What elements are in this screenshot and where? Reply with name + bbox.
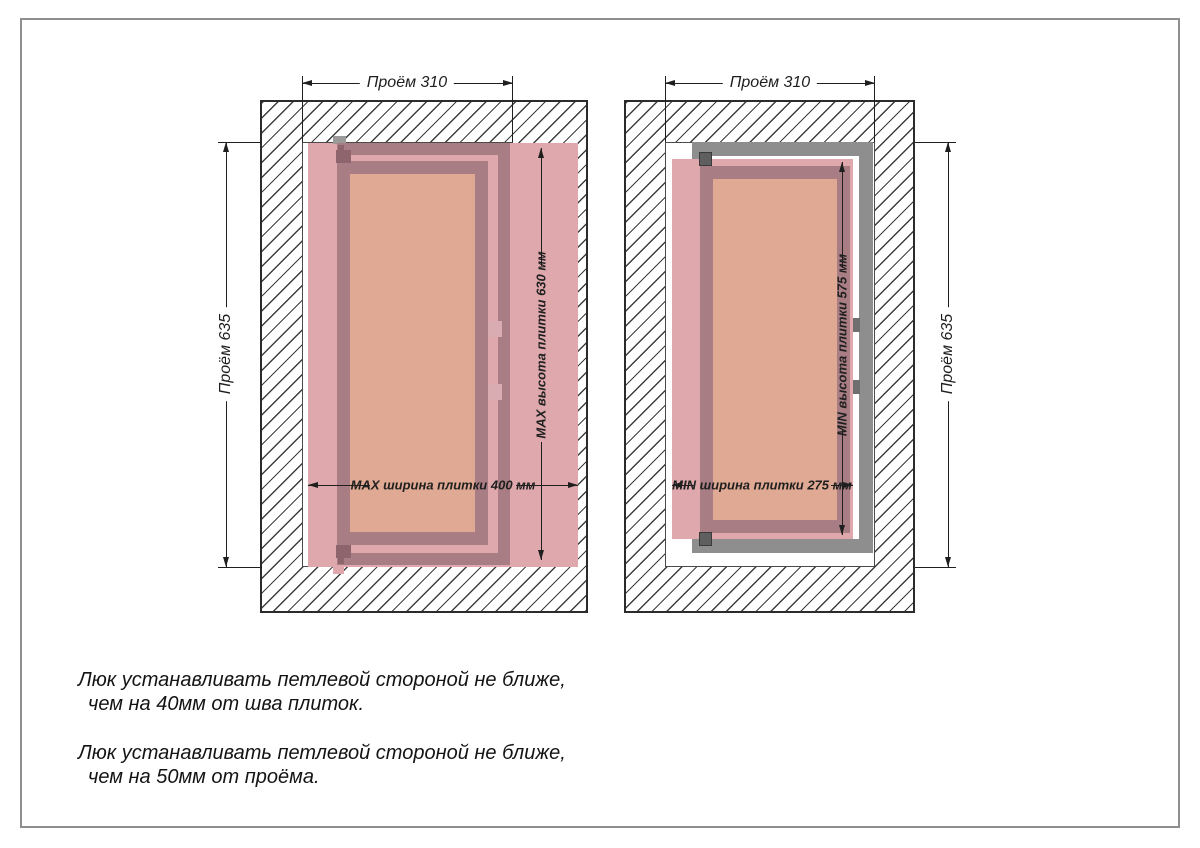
right-tile-width-label: MIN ширина плитки 275 мм	[672, 478, 852, 493]
right-dim-arrow	[865, 80, 875, 86]
left-hinge-top-pin	[338, 145, 344, 151]
note-line: Люк устанавливать петлевой стороной не б…	[78, 742, 566, 766]
left-opening-width-label: Проём 310	[360, 74, 454, 92]
left-dim-arrow	[223, 557, 229, 567]
right-hinge-bottom	[699, 532, 712, 546]
right-dim-ext-line	[874, 76, 875, 142]
left-latch-slot-lower	[488, 384, 502, 400]
left-tile-height-label: MAX высота плитки 630 мм	[534, 251, 549, 438]
right-dim-arrow	[945, 142, 951, 152]
right-dim-line-tile-height	[842, 429, 843, 535]
note-line: чем на 40мм от шва плиток.	[78, 693, 566, 717]
left-hinge-bottom	[336, 545, 351, 558]
right-opening-width-label: Проём 310	[723, 74, 817, 92]
left-opening-height-label: Проём 635	[217, 307, 235, 401]
left-dim-line-tile-height	[541, 442, 542, 560]
right-tile-height-label: MIN высота плитки 575 мм	[835, 254, 850, 436]
right-hinge-top	[699, 152, 712, 166]
note-line: Люк устанавливать петлевой стороной не б…	[78, 669, 566, 693]
left-latch-slot-upper	[488, 321, 502, 337]
right-dim-ext-line	[665, 76, 666, 142]
left-dim-ext-line	[512, 76, 513, 142]
note-hinge-opening: Люк устанавливать петлевой стороной не б…	[78, 742, 566, 789]
right-latch-tab-upper	[853, 318, 860, 332]
left-dim-ext-line	[302, 76, 303, 142]
right-latch-tab-lower	[853, 380, 860, 394]
left-dim-ext-line	[218, 567, 262, 568]
left-dim-arrow	[568, 482, 578, 488]
note-hinge-tile-seam: Люк устанавливать петлевой стороной не б…	[78, 669, 566, 716]
right-dim-arrow	[665, 80, 675, 86]
left-hinge-top	[336, 150, 351, 163]
left-hinge-bottom-tab	[333, 567, 344, 574]
left-dim-arrow	[538, 148, 544, 158]
left-dim-line-tile-height	[541, 148, 542, 266]
right-dim-ext-line	[915, 567, 956, 568]
left-hinge-bottom-pin	[338, 558, 344, 564]
drawing-sheet: Проём 310 Проём 635 MAX ширина плитки 40…	[0, 0, 1200, 848]
note-line: чем на 50мм от проёма.	[78, 766, 566, 790]
right-dim-arrow	[839, 162, 845, 172]
right-opening-height-label: Проём 635	[939, 307, 957, 401]
right-dim-arrow	[839, 525, 845, 535]
left-dim-arrow	[223, 142, 229, 152]
left-dim-arrow	[302, 80, 312, 86]
left-dim-arrow	[308, 482, 318, 488]
left-dim-arrow	[503, 80, 513, 86]
right-dim-arrow	[945, 557, 951, 567]
right-dim-line-tile-height	[842, 162, 843, 268]
left-tile-width-label: MAX ширина плитки 400 мм	[351, 478, 536, 493]
left-dim-arrow	[538, 550, 544, 560]
